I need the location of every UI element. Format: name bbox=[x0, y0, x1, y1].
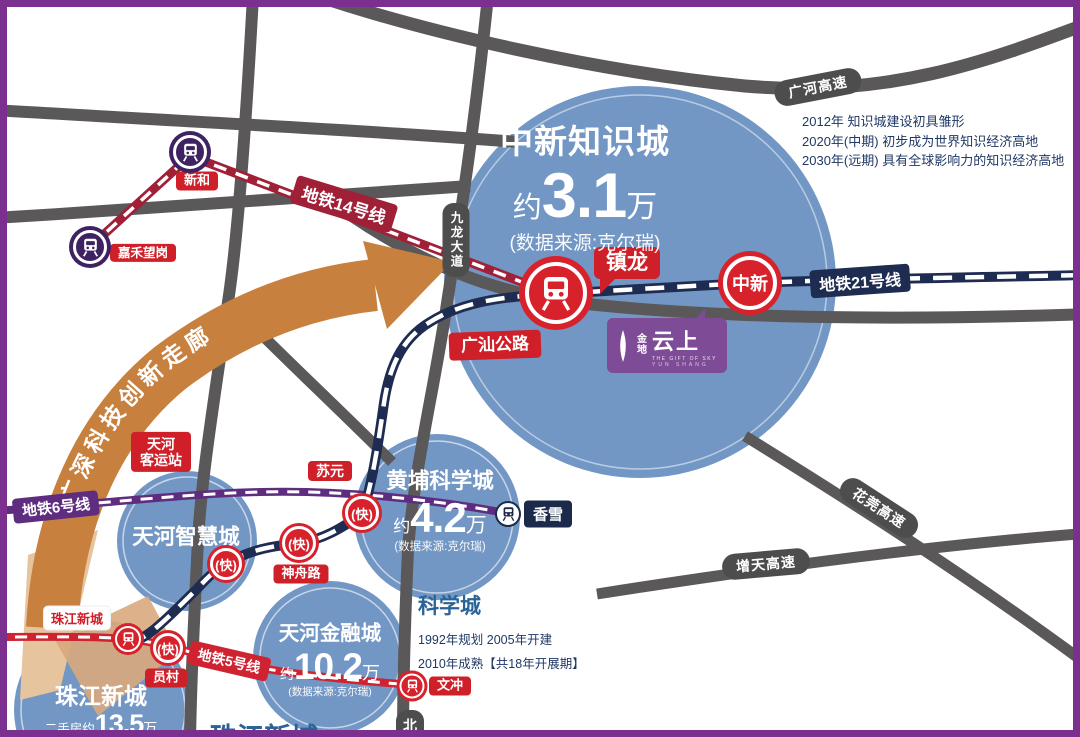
region-name: 中新知识城 bbox=[465, 124, 705, 160]
jiahewanggang-station-marker bbox=[73, 230, 107, 264]
price-about: 二手房约 bbox=[45, 722, 95, 736]
price-unit: 万 bbox=[626, 189, 657, 224]
gemdale-yunshang-logo: 金 地 云上 THE GIFT OF SKY YUN SHANG bbox=[607, 318, 727, 373]
wenchong-station-marker bbox=[400, 674, 425, 699]
price-value: 3.1 bbox=[542, 161, 627, 231]
logo-tagline2: YUN SHANG bbox=[652, 362, 717, 368]
zhenlong-station-marker bbox=[525, 262, 587, 324]
xiangxue-station-marker bbox=[495, 501, 521, 527]
train-icon bbox=[405, 679, 419, 694]
express-label: (快) bbox=[157, 639, 179, 658]
zhujiang-newtown-tag: 珠江新城 bbox=[44, 607, 110, 630]
zhenlong-label-tail bbox=[600, 278, 616, 294]
price-value: 13.5 bbox=[95, 709, 144, 737]
yuancun-station-marker bbox=[115, 626, 141, 652]
price-unit: 万 bbox=[466, 514, 487, 537]
zhongxin-station-marker: 中新 bbox=[723, 256, 777, 310]
guanghe-expressway-road bbox=[312, 0, 1080, 88]
science-city-line2: 2010年成熟【共18年开展期】 bbox=[418, 653, 585, 672]
train-icon bbox=[538, 274, 574, 313]
logo-name-wrap: 云上 THE GIFT OF SKY YUN SHANG bbox=[652, 324, 717, 368]
guangshan-road-label: 广汕公路 bbox=[449, 330, 542, 361]
wenchong-label: 文冲 bbox=[429, 677, 471, 696]
logo-bubble-tail bbox=[691, 309, 705, 323]
region-name: 天河智慧城 bbox=[120, 526, 252, 550]
region-name: 黄埔科学城 bbox=[352, 470, 528, 494]
price-value: 4.2 bbox=[410, 494, 465, 541]
logo-brand-di: 地 bbox=[637, 345, 647, 356]
logo-brand-jin: 金 bbox=[637, 335, 647, 345]
timeline-2030: 2030年(远期) 具有全球影响力的知识经济高地 bbox=[802, 151, 1064, 171]
express-stop-zhihuicheng: (快) bbox=[210, 548, 242, 580]
express-stop-suyuan: (快) bbox=[345, 496, 379, 530]
price-about: 约 bbox=[280, 666, 294, 682]
zhongxin-station-label: 中新 bbox=[732, 270, 768, 296]
science-city-title: 科学城 bbox=[418, 590, 585, 620]
knowledge-city-timeline: 2012年 知识城建设初具雏形 2020年(中期) 初步成为世界知识经济高地 2… bbox=[802, 112, 1064, 171]
bus-terminal-line1: 天河 bbox=[140, 436, 182, 452]
timeline-2012: 2012年 知识城建设初具雏形 bbox=[802, 112, 1064, 132]
price-unit: 万 bbox=[143, 720, 157, 736]
bus-terminal-line2: 客运站 bbox=[140, 452, 182, 468]
price-value: 10.2 bbox=[294, 646, 362, 687]
express-label: (快) bbox=[215, 555, 237, 574]
zengtian-expressway-road bbox=[597, 533, 1080, 594]
zhongxin-knowledge-city-block: 中新知识城 约3.1万 (数据来源:克尔瑞) bbox=[465, 124, 705, 254]
xiangxue-label: 香雪 bbox=[524, 501, 572, 528]
express-label: (快) bbox=[351, 504, 373, 523]
xinhe-station-marker bbox=[173, 135, 207, 169]
region-name: 天河金融城 bbox=[243, 623, 417, 646]
xinhe-label: 新和 bbox=[176, 172, 218, 191]
zhujiang-newtown-block: 珠江新城 二手房约13.5万 (数据来源:贝壳二手房) bbox=[15, 684, 187, 737]
train-icon bbox=[121, 631, 136, 647]
suyuan-label: 苏元 bbox=[308, 461, 352, 481]
north-ring-road-label: 北 bbox=[396, 710, 424, 737]
price-source: (数据来源:克尔瑞) bbox=[352, 541, 528, 554]
train-icon bbox=[81, 237, 100, 258]
express-stop-shenzhoulu: (快) bbox=[282, 526, 316, 560]
express-stop-yuancun: (快) bbox=[153, 633, 183, 663]
zhujiang-newtown-title: 珠江新城 bbox=[210, 716, 318, 737]
logo-brand: 金 地 bbox=[637, 335, 647, 356]
map-canvas: 广深科技创新走廊 广河高速 花莞高速 增天高速 九龙大道 北 地铁14号线 地铁… bbox=[0, 0, 1080, 737]
science-city-annotation: 科学城 1992年规划 2005年开建 2010年成熟【共18年开展期】 bbox=[418, 590, 585, 672]
jiahewanggang-label: 嘉禾望岗 bbox=[110, 244, 176, 262]
road-upper-left bbox=[0, 110, 518, 142]
leaf-icon bbox=[615, 327, 631, 365]
region-name: 珠江新城 bbox=[15, 684, 187, 709]
price-source: (数据来源:克尔瑞) bbox=[243, 687, 417, 699]
express-label: (快) bbox=[288, 534, 310, 553]
logo-name: 云上 bbox=[652, 324, 717, 356]
train-icon bbox=[501, 506, 516, 522]
price-about: 约 bbox=[513, 192, 542, 224]
shenzhoulu-label: 神舟路 bbox=[273, 565, 328, 584]
tianhe-finance-city-block: 天河金融城 约10.2万 (数据来源:克尔瑞) bbox=[243, 623, 417, 699]
price-about: 约 bbox=[393, 517, 410, 536]
tianhe-smart-city-block: 天河智慧城 bbox=[120, 526, 252, 550]
science-city-line1: 1992年规划 2005年开建 bbox=[418, 629, 585, 648]
tianhe-bus-terminal-label: 天河 客运站 bbox=[131, 432, 191, 472]
timeline-2020: 2020年(中期) 初步成为世界知识经济高地 bbox=[802, 132, 1064, 152]
price-unit: 万 bbox=[362, 663, 380, 683]
price-source: (数据来源:克尔瑞) bbox=[465, 234, 705, 255]
train-icon bbox=[181, 142, 200, 163]
